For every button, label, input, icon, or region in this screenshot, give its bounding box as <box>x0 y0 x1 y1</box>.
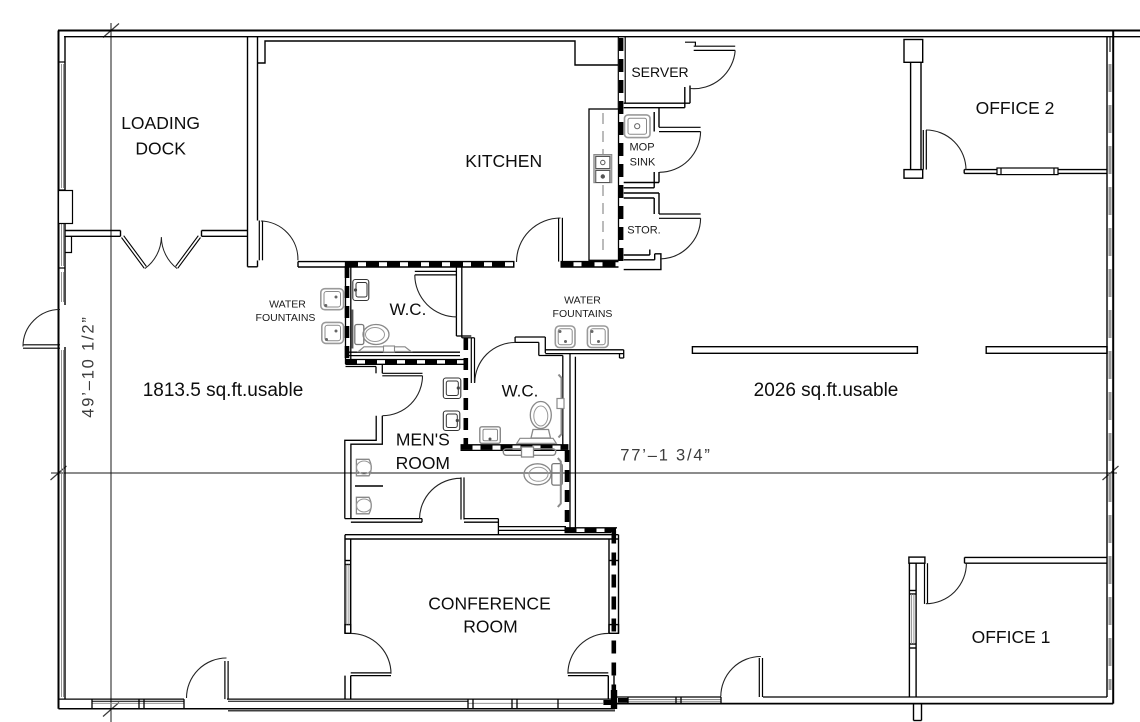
svg-text:FOUNTAINS: FOUNTAINS <box>256 312 316 324</box>
svg-text:SERVER: SERVER <box>631 64 688 80</box>
svg-text:W.C.: W.C. <box>502 382 539 401</box>
svg-text:ROOM: ROOM <box>396 453 450 473</box>
svg-text:LOADING: LOADING <box>121 113 200 133</box>
svg-text:SINK: SINK <box>630 157 656 169</box>
svg-text:OFFICE 1: OFFICE 1 <box>972 627 1051 647</box>
svg-text:STOR.: STOR. <box>627 225 660 237</box>
svg-text:1813.5 sq.ft.usable: 1813.5 sq.ft.usable <box>143 380 304 401</box>
svg-text:KITCHEN: KITCHEN <box>465 151 542 171</box>
svg-text:2026 sq.ft.usable: 2026 sq.ft.usable <box>754 380 899 401</box>
svg-text:WATER: WATER <box>564 295 601 307</box>
svg-text:FOUNTAINS: FOUNTAINS <box>553 308 613 320</box>
svg-text:MOP: MOP <box>629 142 654 154</box>
svg-text:OFFICE 2: OFFICE 2 <box>976 98 1055 118</box>
svg-text:DOCK: DOCK <box>135 139 186 159</box>
svg-text:CONFERENCE: CONFERENCE <box>428 594 551 614</box>
svg-text:77’–1 3/4”: 77’–1 3/4” <box>620 447 711 465</box>
svg-text:W.C.: W.C. <box>389 300 426 319</box>
svg-text:ROOM: ROOM <box>463 617 517 637</box>
svg-text:WATER: WATER <box>269 299 306 311</box>
svg-text:MEN'S: MEN'S <box>396 430 450 450</box>
svg-text:49’–10 1/2”: 49’–10 1/2” <box>80 315 98 417</box>
